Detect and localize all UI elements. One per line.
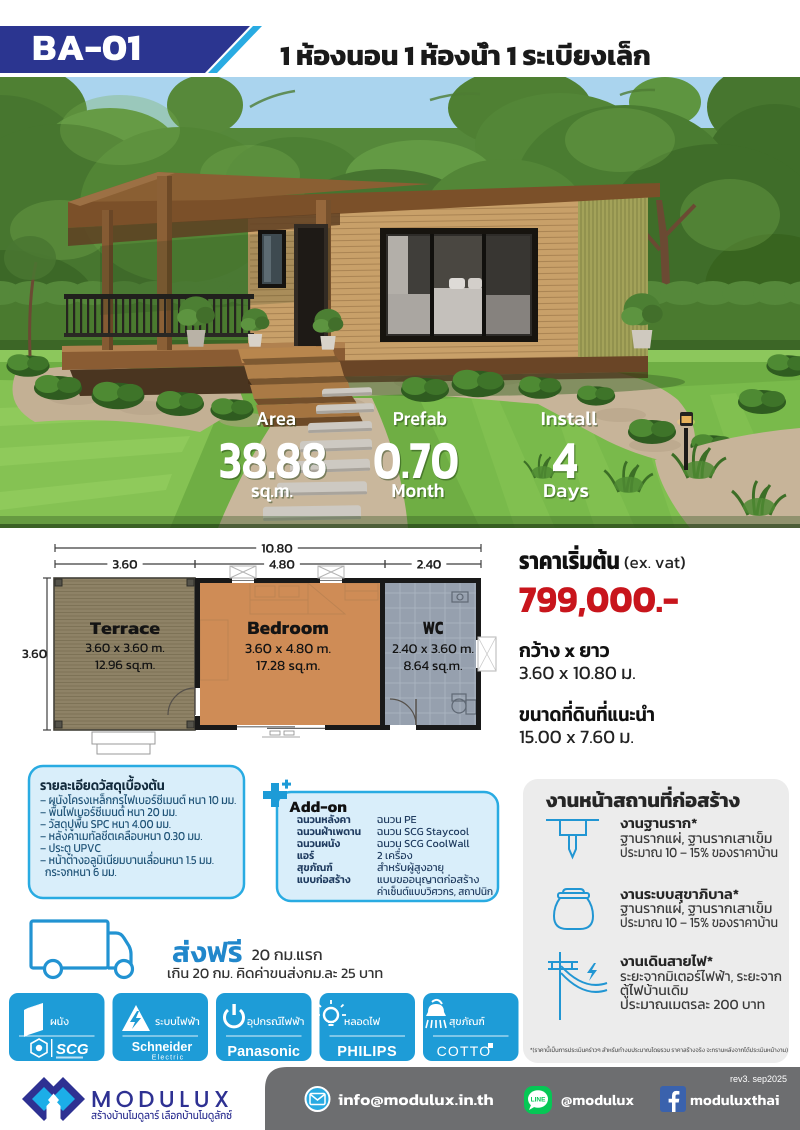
svg-text:Panasonic: Panasonic	[227, 1044, 300, 1060]
svg-text:rev3. sep2025: rev3. sep2025	[730, 1074, 787, 1084]
svg-text:Electric: Electric	[152, 1055, 185, 1062]
svg-text:Schneider: Schneider	[132, 1040, 193, 1054]
svg-text:SCG: SCG	[56, 1041, 89, 1058]
svg-text:PHILIPS: PHILIPS	[337, 1044, 397, 1060]
svg-text:COTTO: COTTO	[437, 1043, 492, 1059]
svg-text:LINE: LINE	[531, 1097, 546, 1104]
